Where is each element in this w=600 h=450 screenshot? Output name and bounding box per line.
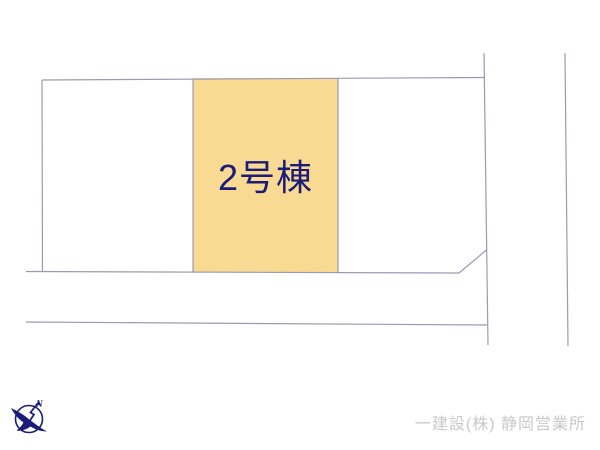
compass-bird-shape — [11, 408, 47, 432]
compass-icon: N — [11, 399, 47, 433]
parcel-label-building-2: 2号棟 — [193, 78, 338, 272]
corner-cut-diagonal — [459, 250, 487, 274]
right-road-edge-left — [484, 53, 488, 345]
boundary-line-left — [42, 80, 43, 272]
company-watermark: 一建設(株) 静岡営業所 — [415, 410, 586, 434]
right-road-edge-right — [565, 53, 568, 346]
site-plan-canvas: N 2号棟 一建設(株) 静岡営業所 — [0, 0, 600, 450]
road-edge-lower — [26, 322, 487, 325]
compass-north-label: N — [35, 399, 44, 410]
